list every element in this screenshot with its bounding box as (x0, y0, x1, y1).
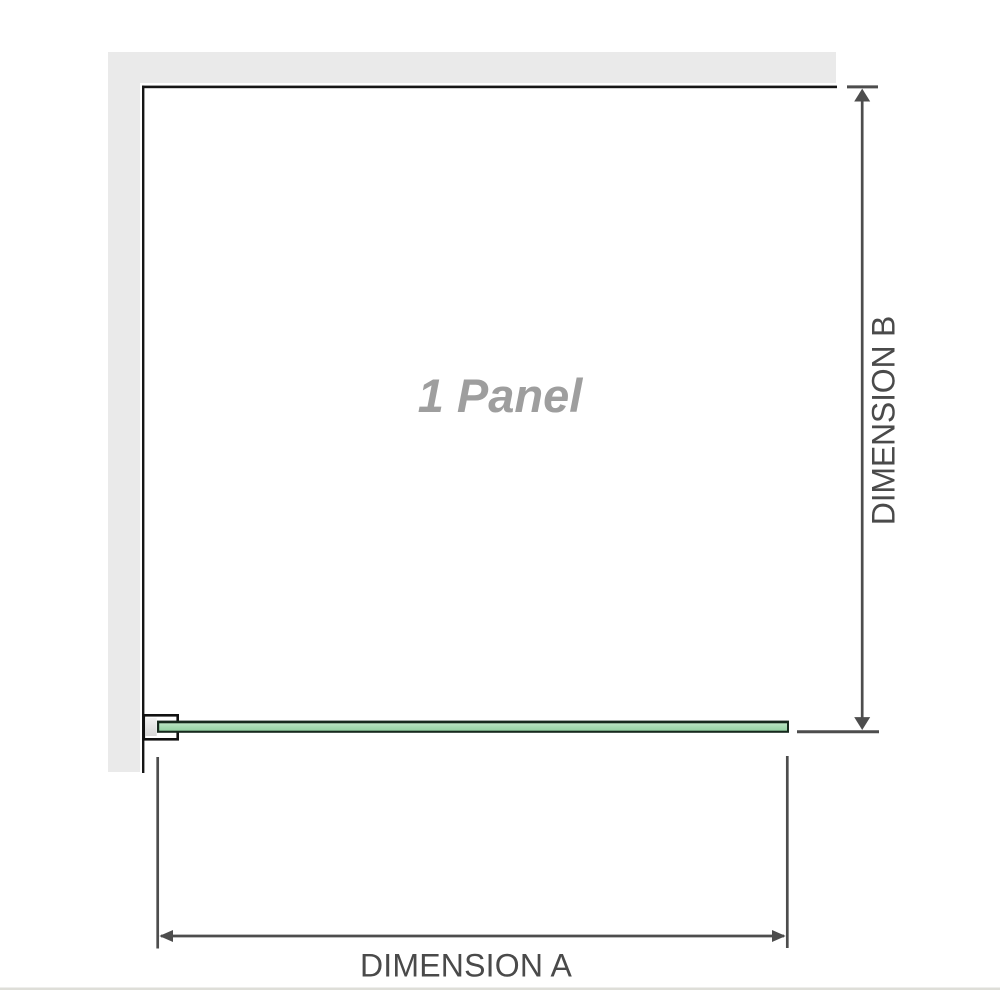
svg-text:1 Panel: 1 Panel (418, 369, 584, 422)
svg-text:DIMENSION B: DIMENSION B (866, 316, 902, 525)
svg-text:DIMENSION A: DIMENSION A (360, 948, 572, 984)
